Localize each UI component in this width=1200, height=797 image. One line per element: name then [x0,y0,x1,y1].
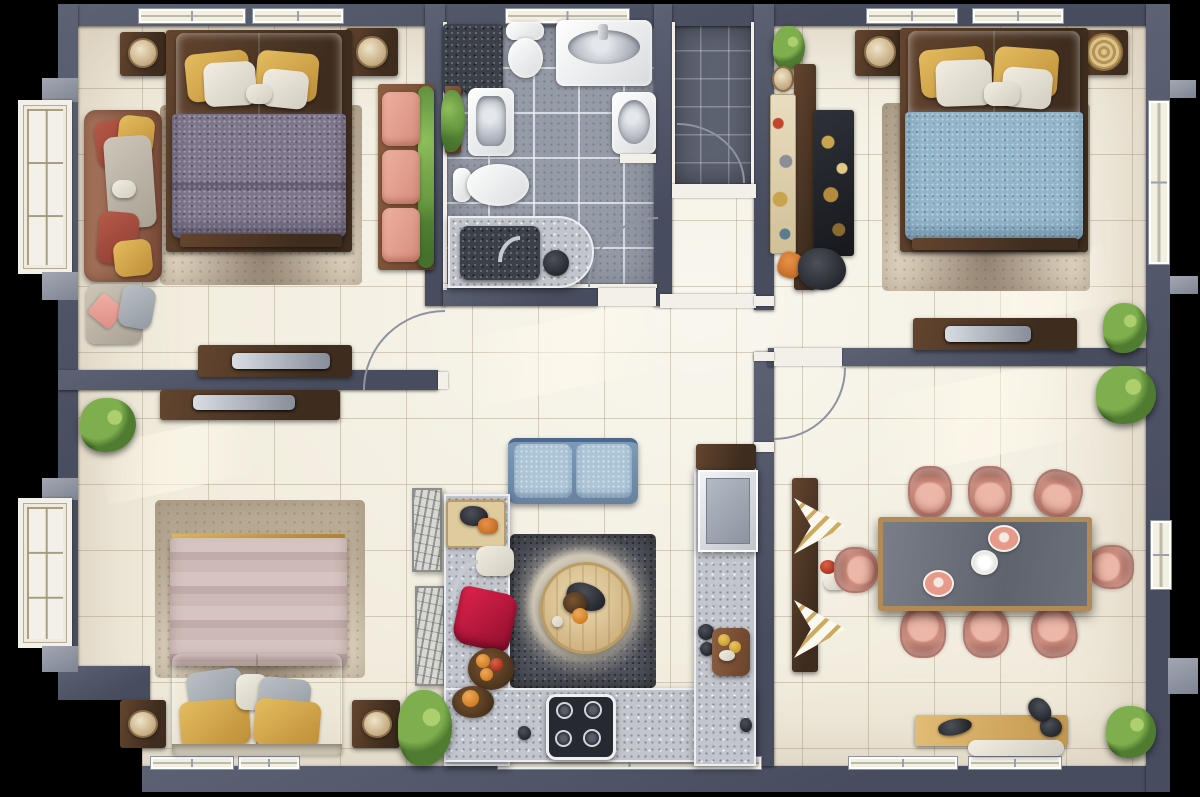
fruit-4 [462,690,479,707]
window-right-upper [1148,100,1170,265]
window-bottom-1 [150,756,234,770]
cap-kitchen-wall-mid [754,442,774,452]
wall-sink-shelf [620,154,656,163]
bathroom-vanity-basin [476,96,506,146]
burner-1 [556,702,573,719]
bed1-pillow-small [246,84,272,104]
frame-art-1 [412,488,442,572]
wall-sink-basin [618,100,650,144]
frame-art-2 [415,586,445,686]
table-cup [552,616,563,627]
bed2-pillow-small [984,82,1020,106]
cap-kitchen-wall-top [754,352,774,361]
burner-2 [584,701,602,719]
chair-bottom-1 [900,606,946,658]
threshold-hall-top [672,184,756,198]
chair-left [834,547,878,593]
fruit-2 [490,658,503,671]
trim-hall-left [672,22,675,184]
plate-white [971,550,998,575]
tv-b1 [232,353,330,369]
floor-plan-canvas [0,0,1200,797]
window-bottom-5 [968,756,1062,770]
fruit-3 [480,668,493,681]
board-food-orange [478,518,498,534]
bathroom-faucet [598,24,608,40]
sofa-blue-cushion-2 [576,444,632,498]
burner-4 [583,729,601,747]
bed3-headboard-edge [172,744,342,756]
toilet-bowl [508,38,543,78]
fruit-1 [476,654,490,668]
bed3-duvet [170,538,347,666]
decor-b3-right [362,710,392,738]
wall-kitchen-right [754,352,774,766]
chair-bottom-2 [963,606,1009,658]
stove-knob [518,726,531,740]
scatter-dark-b2 [798,248,846,290]
decor-b2-left [864,36,896,68]
mini-plate [719,650,735,661]
cabinet-over-fridge [696,444,756,470]
window-top-2 [252,8,344,24]
stub-right-top [1170,80,1196,98]
plate-pink-2 [923,570,954,597]
stub-right-bottom [1168,658,1198,694]
bed3-pillow-yellow-right [252,697,322,749]
sofa-pink-cushion-3 [382,208,420,262]
bay-lower-cap-bottom [42,646,78,672]
tv-b3 [193,395,295,410]
bay-upper-cap-bottom [42,272,78,300]
threshold-hall-bottom [660,294,756,308]
bay-upper-cap-top [42,78,78,102]
window-top-1 [138,8,246,24]
counter-knob [740,718,752,732]
bed1-foot-rail [180,234,342,247]
window-bottom-2 [238,756,300,770]
chair-top-2 [968,466,1012,518]
sofa-pink-cushion-2 [382,150,420,204]
table-fruit [572,608,588,624]
decor-b3-left [128,710,158,738]
bidet-bowl [467,164,529,206]
sofa-pink-cushion-1 [382,92,420,146]
threshold-dining-door [774,348,842,366]
tapestry-gold [770,94,796,254]
window-top-4 [972,8,1064,24]
red-cushion [451,585,520,654]
window-bottom-4 [848,756,958,770]
floor-plan [0,0,1200,797]
bay-lower-cap-top [42,478,78,500]
sofa-pink-runner [418,86,434,268]
tapestry-dark [814,110,854,256]
bed1-duvet [172,114,346,238]
decor-b1-right [356,36,388,68]
mini-fruit-1 [718,634,730,646]
bay-upper-glass [24,106,66,268]
bathroom-dark-panel [443,24,503,94]
trim-hall-right [751,22,754,184]
threshold-bathroom-door [598,288,656,306]
cap-hall-wall-bottom [754,296,774,306]
counter-cloth-white [476,546,514,576]
chair-top-1 [908,466,952,518]
stone-b2 [772,66,794,92]
bed2-duvet [905,112,1083,240]
stove [546,694,616,760]
wall-bathroom-bottom [443,288,598,306]
burner-3 [555,730,572,747]
wall-bedroom2-dining [842,348,1146,366]
decor-b1-left [128,38,158,68]
sofa-blue-cushion-1 [514,444,572,498]
bed2-foot-rail [912,238,1078,250]
chair-right [1088,545,1134,589]
fridge-inner-panel [706,478,750,544]
bay-lower-glass [24,504,66,642]
sofa-b1-tray [112,180,136,198]
sofa-b1-pillow-yellow-bottom [112,238,154,278]
sideboard-tray [968,740,1064,756]
window-top-3 [866,8,958,24]
plate-pink-1 [988,525,1020,552]
shower-drain [543,250,569,276]
decor-b2-right [1085,33,1123,71]
tv-b2 [945,326,1031,342]
stub-right-mid [1170,276,1198,294]
window-right-lower [1150,520,1172,590]
